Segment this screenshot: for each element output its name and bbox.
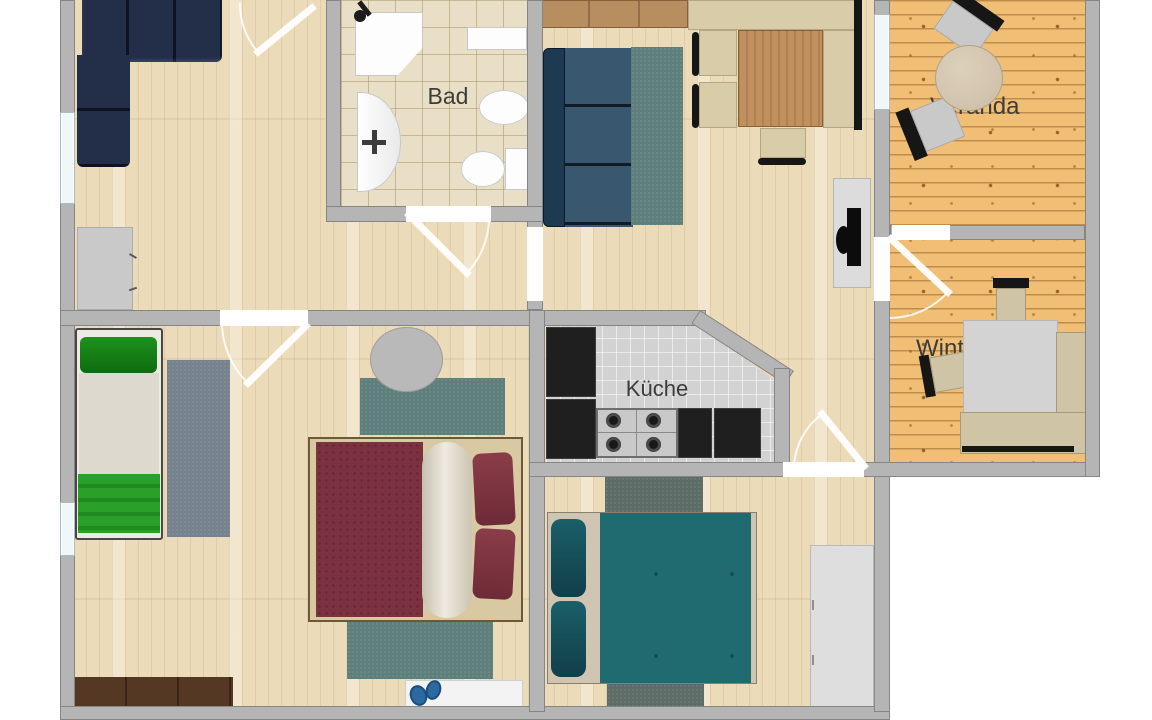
bath-shelf: [467, 27, 527, 50]
stove-burner: [646, 437, 661, 452]
wall-kitchen-right: [774, 368, 790, 464]
corner-bench-right: [823, 30, 857, 128]
kitchen-counter: [714, 408, 761, 458]
stove-burner: [606, 413, 621, 428]
bed-pillow-teal: [551, 519, 586, 597]
door-opening-hall-living: [527, 227, 543, 301]
corner-sofa-left: [77, 55, 130, 167]
wall-bedrooms-top: [60, 310, 706, 326]
dining-chair-seat: [760, 128, 806, 158]
wintergarten-table: [963, 320, 1058, 413]
kitchen-counter: [546, 327, 596, 397]
stool-round: [370, 327, 443, 392]
teal-room-rug-bottom: [607, 684, 704, 708]
wall-rooms-divider: [529, 310, 545, 712]
dining-chair-seat: [699, 82, 737, 128]
tv-speaker: [836, 226, 851, 254]
wintergarten-chair-back: [993, 278, 1029, 288]
door-opening-veranda-divider: [892, 225, 950, 240]
door-opening-veranda: [874, 14, 890, 110]
dining-chair-seat: [699, 30, 737, 76]
dining-table: [738, 30, 823, 127]
living-cabinet: [77, 227, 133, 310]
bed-pillow-teal: [551, 601, 586, 677]
red-duvet: [316, 442, 423, 617]
wintergarten-chair-seat: [996, 288, 1026, 322]
bench-rail: [962, 446, 1074, 452]
sink-faucet: [362, 140, 386, 145]
wall-wing-right: [1085, 0, 1100, 477]
kids-bed-blanket: [78, 474, 160, 533]
kitchen-counter: [678, 408, 712, 458]
door-opening-bedroom: [220, 310, 308, 326]
wall-outer-left: [60, 0, 75, 712]
stove-burner: [646, 413, 661, 428]
window-kids-left: [60, 502, 75, 556]
dining-chair-back: [692, 32, 699, 76]
veranda-round-table: [935, 45, 1003, 111]
teal-room-rug-top: [605, 477, 703, 513]
kids-bed-sheet: [79, 373, 159, 474]
couch-seats: [565, 48, 633, 227]
dining-chair-back: [692, 84, 699, 128]
wardrobe-handle-mark: [812, 600, 814, 610]
bathroom-label: Bad: [403, 83, 493, 110]
kitchen-counter: [546, 399, 596, 459]
bedroom-rug-top: [360, 378, 505, 435]
floor-plan: Veranda Wintergarten Bad Küche: [0, 0, 1152, 720]
bed-pillow: [472, 452, 516, 526]
door-opening-bath: [406, 206, 491, 222]
wall-outer-bottom: [60, 706, 890, 720]
toilet-bowl: [461, 151, 505, 187]
teal-duvet: [600, 513, 751, 683]
wall-bath-left: [326, 0, 341, 222]
couch-rug: [631, 47, 683, 225]
kids-bed-pillow: [80, 337, 157, 373]
bed-pillow: [472, 528, 516, 600]
rolled-blanket: [422, 442, 472, 618]
couch-backrest: [543, 48, 565, 227]
toilet-tank: [505, 148, 528, 190]
kitchen-label: Küche: [597, 376, 717, 402]
stove-burner: [606, 437, 621, 452]
corner-sofa-top: [82, 0, 222, 62]
shower-head-icon: [354, 10, 366, 22]
sideboard: [540, 0, 688, 28]
door-opening-teal-room: [783, 462, 864, 477]
wardrobe-gray: [810, 545, 874, 710]
dining-chair-back: [758, 158, 806, 165]
window-living-left: [60, 112, 75, 204]
door-opening-wintergarten: [874, 237, 890, 301]
corner-bench-top: [688, 0, 858, 30]
kids-room-rug: [167, 360, 230, 537]
bench-rail: [854, 0, 862, 130]
wardrobe-handle-mark: [812, 655, 814, 665]
bedroom-rug-bottom: [347, 622, 493, 679]
